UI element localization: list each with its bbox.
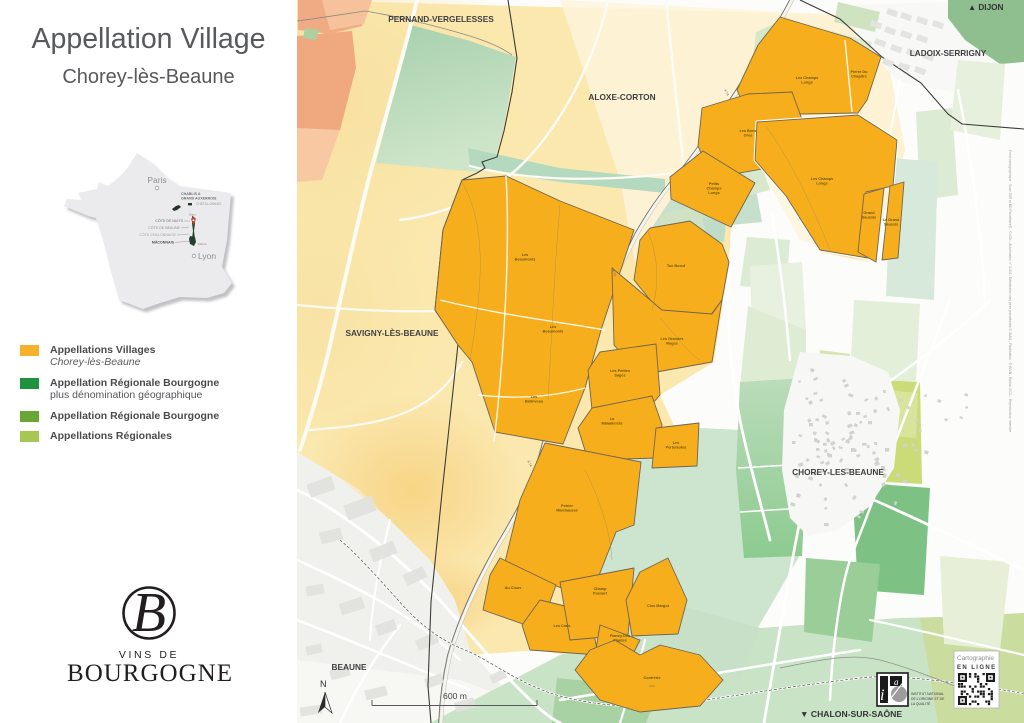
svg-text:EN LIGNE: EN LIGNE xyxy=(957,665,997,671)
svg-text:Les Petites: Les Petites xyxy=(610,369,630,373)
svg-text:Poirier: Poirier xyxy=(561,504,574,508)
svg-text:Malchaussé: Malchaussé xyxy=(556,509,578,513)
svg-text:Longs: Longs xyxy=(801,81,812,85)
svg-text:BEAUNE: BEAUNE xyxy=(331,662,367,672)
svg-text:DE L'ORIGINE ET DE: DE L'ORIGINE ET DE xyxy=(911,697,945,701)
svg-text:Saussis: Saussis xyxy=(862,216,876,220)
svg-text:Paris: Paris xyxy=(147,175,166,185)
svg-text:B: B xyxy=(132,582,166,644)
svg-text:MÂCONNAIS: MÂCONNAIS xyxy=(152,240,175,245)
svg-text:Beaumonts: Beaumonts xyxy=(515,258,536,262)
svg-text:Les Grandes: Les Grandes xyxy=(660,337,683,341)
svg-text:Lyon: Lyon xyxy=(198,251,216,261)
svg-text:Clos Margot: Clos Margot xyxy=(647,604,670,608)
svg-text:i: i xyxy=(880,687,884,704)
svg-text:LADOIX-SERRIGNY: LADOIX-SERRIGNY xyxy=(910,49,987,58)
svg-text:PERNAND-VERGELESSES: PERNAND-VERGELESSES xyxy=(388,14,494,24)
svg-text:CHÂTILLONNAIS: CHÂTILLONNAIS xyxy=(196,202,221,206)
svg-text:Le Grand: Le Grand xyxy=(883,218,900,222)
svg-text:Grand: Grand xyxy=(863,211,875,215)
svg-text:Les: Les xyxy=(531,395,538,399)
svg-text:Longs: Longs xyxy=(708,191,719,195)
svg-text:Plantes: Plantes xyxy=(613,639,627,643)
svg-text:SAVIGNY-LÈS-BEAUNE: SAVIGNY-LÈS-BEAUNE xyxy=(346,328,439,338)
svg-text:Petits: Petits xyxy=(709,182,719,186)
svg-text:Pertuisotes: Pertuisotes xyxy=(666,446,687,450)
svg-text:Champs: Champs xyxy=(707,187,722,191)
svg-text:Les Champs: Les Champs xyxy=(796,76,819,80)
svg-text:Pianey Des: Pianey Des xyxy=(610,634,630,638)
svg-text:Les: Les xyxy=(673,441,680,445)
svg-text:Les: Les xyxy=(550,325,557,329)
svg-text:GRAND AUXERROIS: GRAND AUXERROIS xyxy=(181,197,217,201)
svg-text:CHABLIS &: CHABLIS & xyxy=(181,192,201,196)
svg-text:Chapitre: Chapitre xyxy=(851,75,866,79)
svg-text:CÔTE CHALONNAISE: CÔTE CHALONNAISE xyxy=(139,232,176,237)
svg-text:Mâcon: Mâcon xyxy=(198,242,207,246)
svg-text:Batinveau: Batinveau xyxy=(525,400,544,404)
svg-text:Dijon: Dijon xyxy=(189,213,196,217)
svg-text:Ruges: Ruges xyxy=(666,342,678,346)
svg-text:Ores: Ores xyxy=(744,134,753,138)
svg-text:Les Crais: Les Crais xyxy=(553,624,570,628)
svg-text:Les Champs: Les Champs xyxy=(811,177,834,181)
svg-text:▼ CHALON-SUR-SAÔNE: ▼ CHALON-SUR-SAÔNE xyxy=(800,708,902,719)
svg-text:Clos: Clos xyxy=(649,684,656,688)
svg-text:CÔTE DE BEAUNE: CÔTE DE BEAUNE xyxy=(148,225,180,230)
svg-text:ALOXE-CORTON: ALOXE-CORTON xyxy=(588,92,655,102)
svg-text:Cartographie: Cartographie xyxy=(957,655,994,662)
svg-text:Fond cartographique : Scan 25®: Fond cartographique : Scan 25® et BD Par… xyxy=(1008,150,1013,432)
svg-text:N: N xyxy=(320,679,327,689)
svg-text:Confrérie: Confrérie xyxy=(644,676,661,680)
svg-text:▲ DIJON: ▲ DIJON xyxy=(968,3,1003,12)
svg-text:Pussart: Pussart xyxy=(593,592,608,596)
svg-text:BOURGOGNE: BOURGOGNE xyxy=(67,660,233,687)
svg-text:Pierre Du: Pierre Du xyxy=(851,70,869,74)
svg-text:Longs: Longs xyxy=(816,182,827,186)
svg-text:600 m: 600 m xyxy=(443,691,467,701)
svg-text:Saussis: Saussis xyxy=(884,223,898,227)
svg-text:Les: Les xyxy=(522,253,529,257)
svg-text:LA QUALITÉ: LA QUALITÉ xyxy=(911,701,931,706)
svg-text:Au Clous: Au Clous xyxy=(505,586,522,590)
svg-text:Tue Boeuf: Tue Boeuf xyxy=(667,264,686,268)
svg-text:Champ: Champ xyxy=(594,587,608,591)
svg-text:Beaumonts: Beaumonts xyxy=(543,330,564,334)
svg-text:Les Bons: Les Bons xyxy=(739,129,756,133)
svg-text:INSTITUT NATIONAL: INSTITUT NATIONAL xyxy=(911,692,944,696)
svg-text:Sages: Sages xyxy=(614,374,625,378)
svg-text:a: a xyxy=(894,677,899,687)
svg-text:CHOREY-LES-BEAUNE: CHOREY-LES-BEAUNE xyxy=(792,467,884,477)
svg-text:CÔTE DE NUITS: CÔTE DE NUITS xyxy=(155,218,183,223)
svg-text:Maladiercte: Maladiercte xyxy=(602,422,623,426)
